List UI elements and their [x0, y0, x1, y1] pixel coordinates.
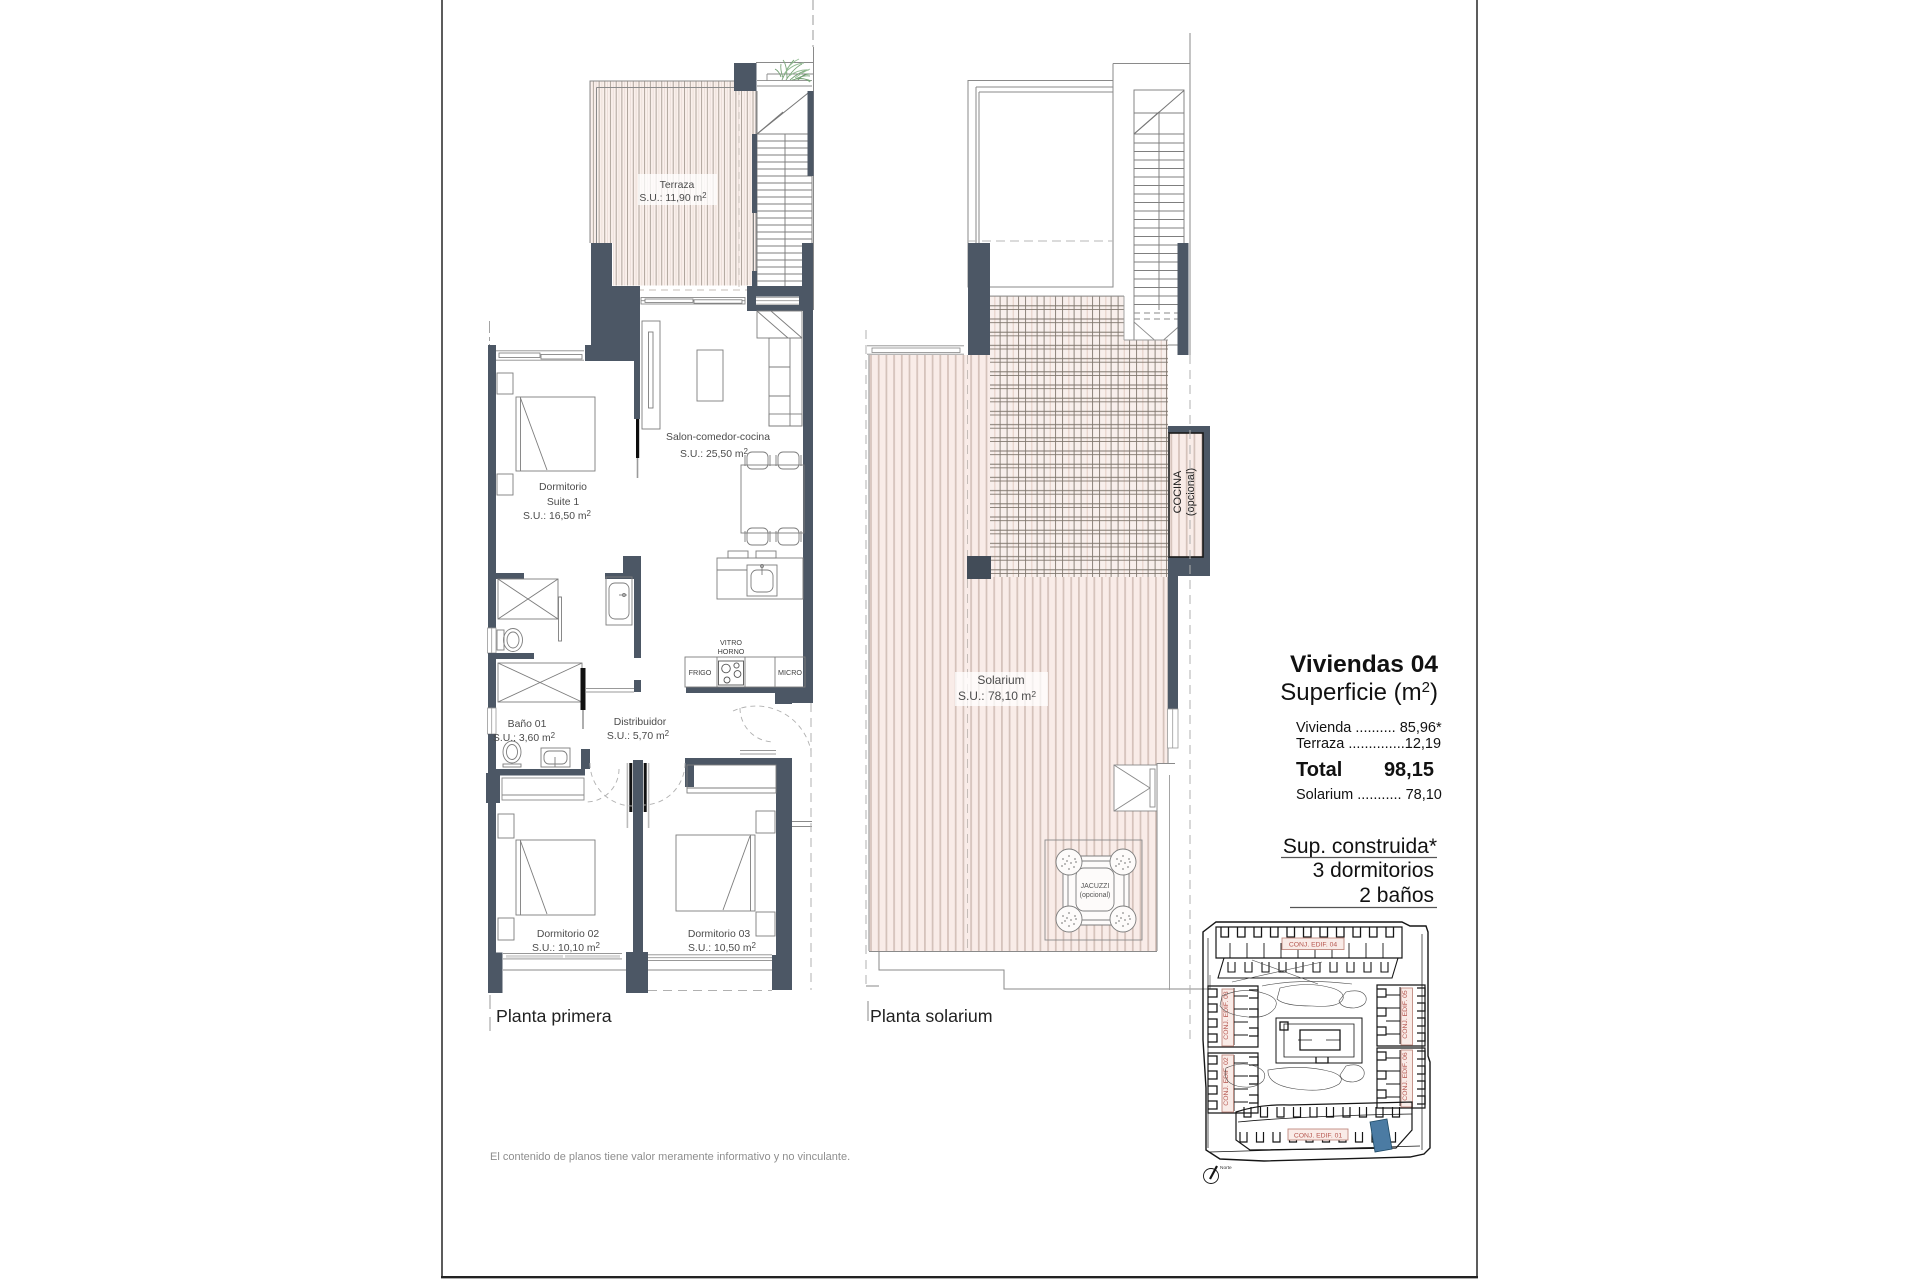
svg-text:COCINA: COCINA — [1172, 470, 1184, 513]
svg-text:S.U.: 5,70 m2: S.U.: 5,70 m2 — [607, 729, 670, 742]
svg-text:Salon-comedor-cocina: Salon-comedor-cocina — [666, 432, 770, 443]
svg-text:2 baños: 2 baños — [1359, 884, 1434, 907]
svg-text:S.U.: 10,10 m2: S.U.: 10,10 m2 — [532, 941, 601, 954]
svg-text:S.U.: 3,60 m2: S.U.: 3,60 m2 — [493, 731, 556, 744]
svg-text:Vivienda .......... 85,96*: Vivienda .......... 85,96* — [1296, 720, 1442, 736]
svg-text:98,15: 98,15 — [1384, 759, 1434, 781]
svg-text:El contenido de planos tiene v: El contenido de planos tiene valor meram… — [490, 1151, 850, 1163]
svg-text:CONJ. EDIF. 04: CONJ. EDIF. 04 — [1289, 942, 1338, 949]
svg-text:JACUZZI: JACUZZI — [1081, 883, 1110, 890]
svg-text:Dormitorio 02: Dormitorio 02 — [537, 929, 600, 940]
svg-text:CONJ. EDIF. 03: CONJ. EDIF. 03 — [1223, 991, 1230, 1040]
svg-text:Solarium ........... 78,10: Solarium ........... 78,10 — [1296, 787, 1442, 803]
svg-text:CONJ. EDIF. 02: CONJ. EDIF. 02 — [1223, 1057, 1230, 1106]
svg-text:VITRO: VITRO — [720, 638, 742, 647]
svg-text:CONJ. EDIF. 06: CONJ. EDIF. 06 — [1402, 1052, 1409, 1101]
svg-text:3 dormitorios: 3 dormitorios — [1313, 859, 1434, 882]
svg-text:Dormitorio: Dormitorio — [539, 482, 587, 493]
svg-text:FRIGO: FRIGO — [689, 668, 712, 677]
svg-text:S.U.: 10,50 m2: S.U.: 10,50 m2 — [688, 941, 757, 954]
svg-text:(opcional): (opcional) — [1080, 892, 1111, 899]
svg-text:Solarium: Solarium — [977, 673, 1024, 687]
svg-text:Suite 1: Suite 1 — [547, 497, 580, 508]
svg-text:S.U.: 25,50 m2: S.U.: 25,50 m2 — [680, 447, 749, 460]
svg-text:S.U.: 78,10 m2: S.U.: 78,10 m2 — [958, 689, 1036, 703]
svg-text:Planta solarium: Planta solarium — [870, 1006, 993, 1026]
svg-text:Total: Total — [1296, 759, 1342, 781]
svg-text:S.U.: 16,50 m2: S.U.: 16,50 m2 — [523, 509, 592, 522]
svg-text:(opcional): (opcional) — [1185, 468, 1197, 516]
svg-text:HORNO: HORNO — [718, 647, 745, 656]
svg-text:Superficie (m2): Superficie (m2) — [1280, 679, 1438, 706]
svg-text:Sup. construida*: Sup. construida* — [1283, 835, 1437, 858]
svg-text:Planta primera: Planta primera — [496, 1006, 612, 1026]
svg-text:S.U.: 11,90 m2: S.U.: 11,90 m2 — [639, 191, 707, 204]
svg-text:MICRO: MICRO — [778, 668, 802, 677]
svg-text:Norte: Norte — [1220, 1165, 1232, 1171]
svg-text:CONJ. EDIF. 05: CONJ. EDIF. 05 — [1402, 990, 1409, 1039]
svg-text:Dormitorio 03: Dormitorio 03 — [688, 929, 751, 940]
svg-text:Viviendas 04: Viviendas 04 — [1290, 651, 1438, 678]
svg-text:CONJ. EDIF. 01: CONJ. EDIF. 01 — [1294, 1133, 1343, 1140]
svg-text:Baño 01: Baño 01 — [508, 719, 547, 730]
svg-text:Terraza ..............12,19: Terraza ..............12,19 — [1296, 736, 1441, 752]
svg-text:Terraza: Terraza — [660, 180, 695, 191]
svg-text:Distribuidor: Distribuidor — [614, 717, 667, 728]
